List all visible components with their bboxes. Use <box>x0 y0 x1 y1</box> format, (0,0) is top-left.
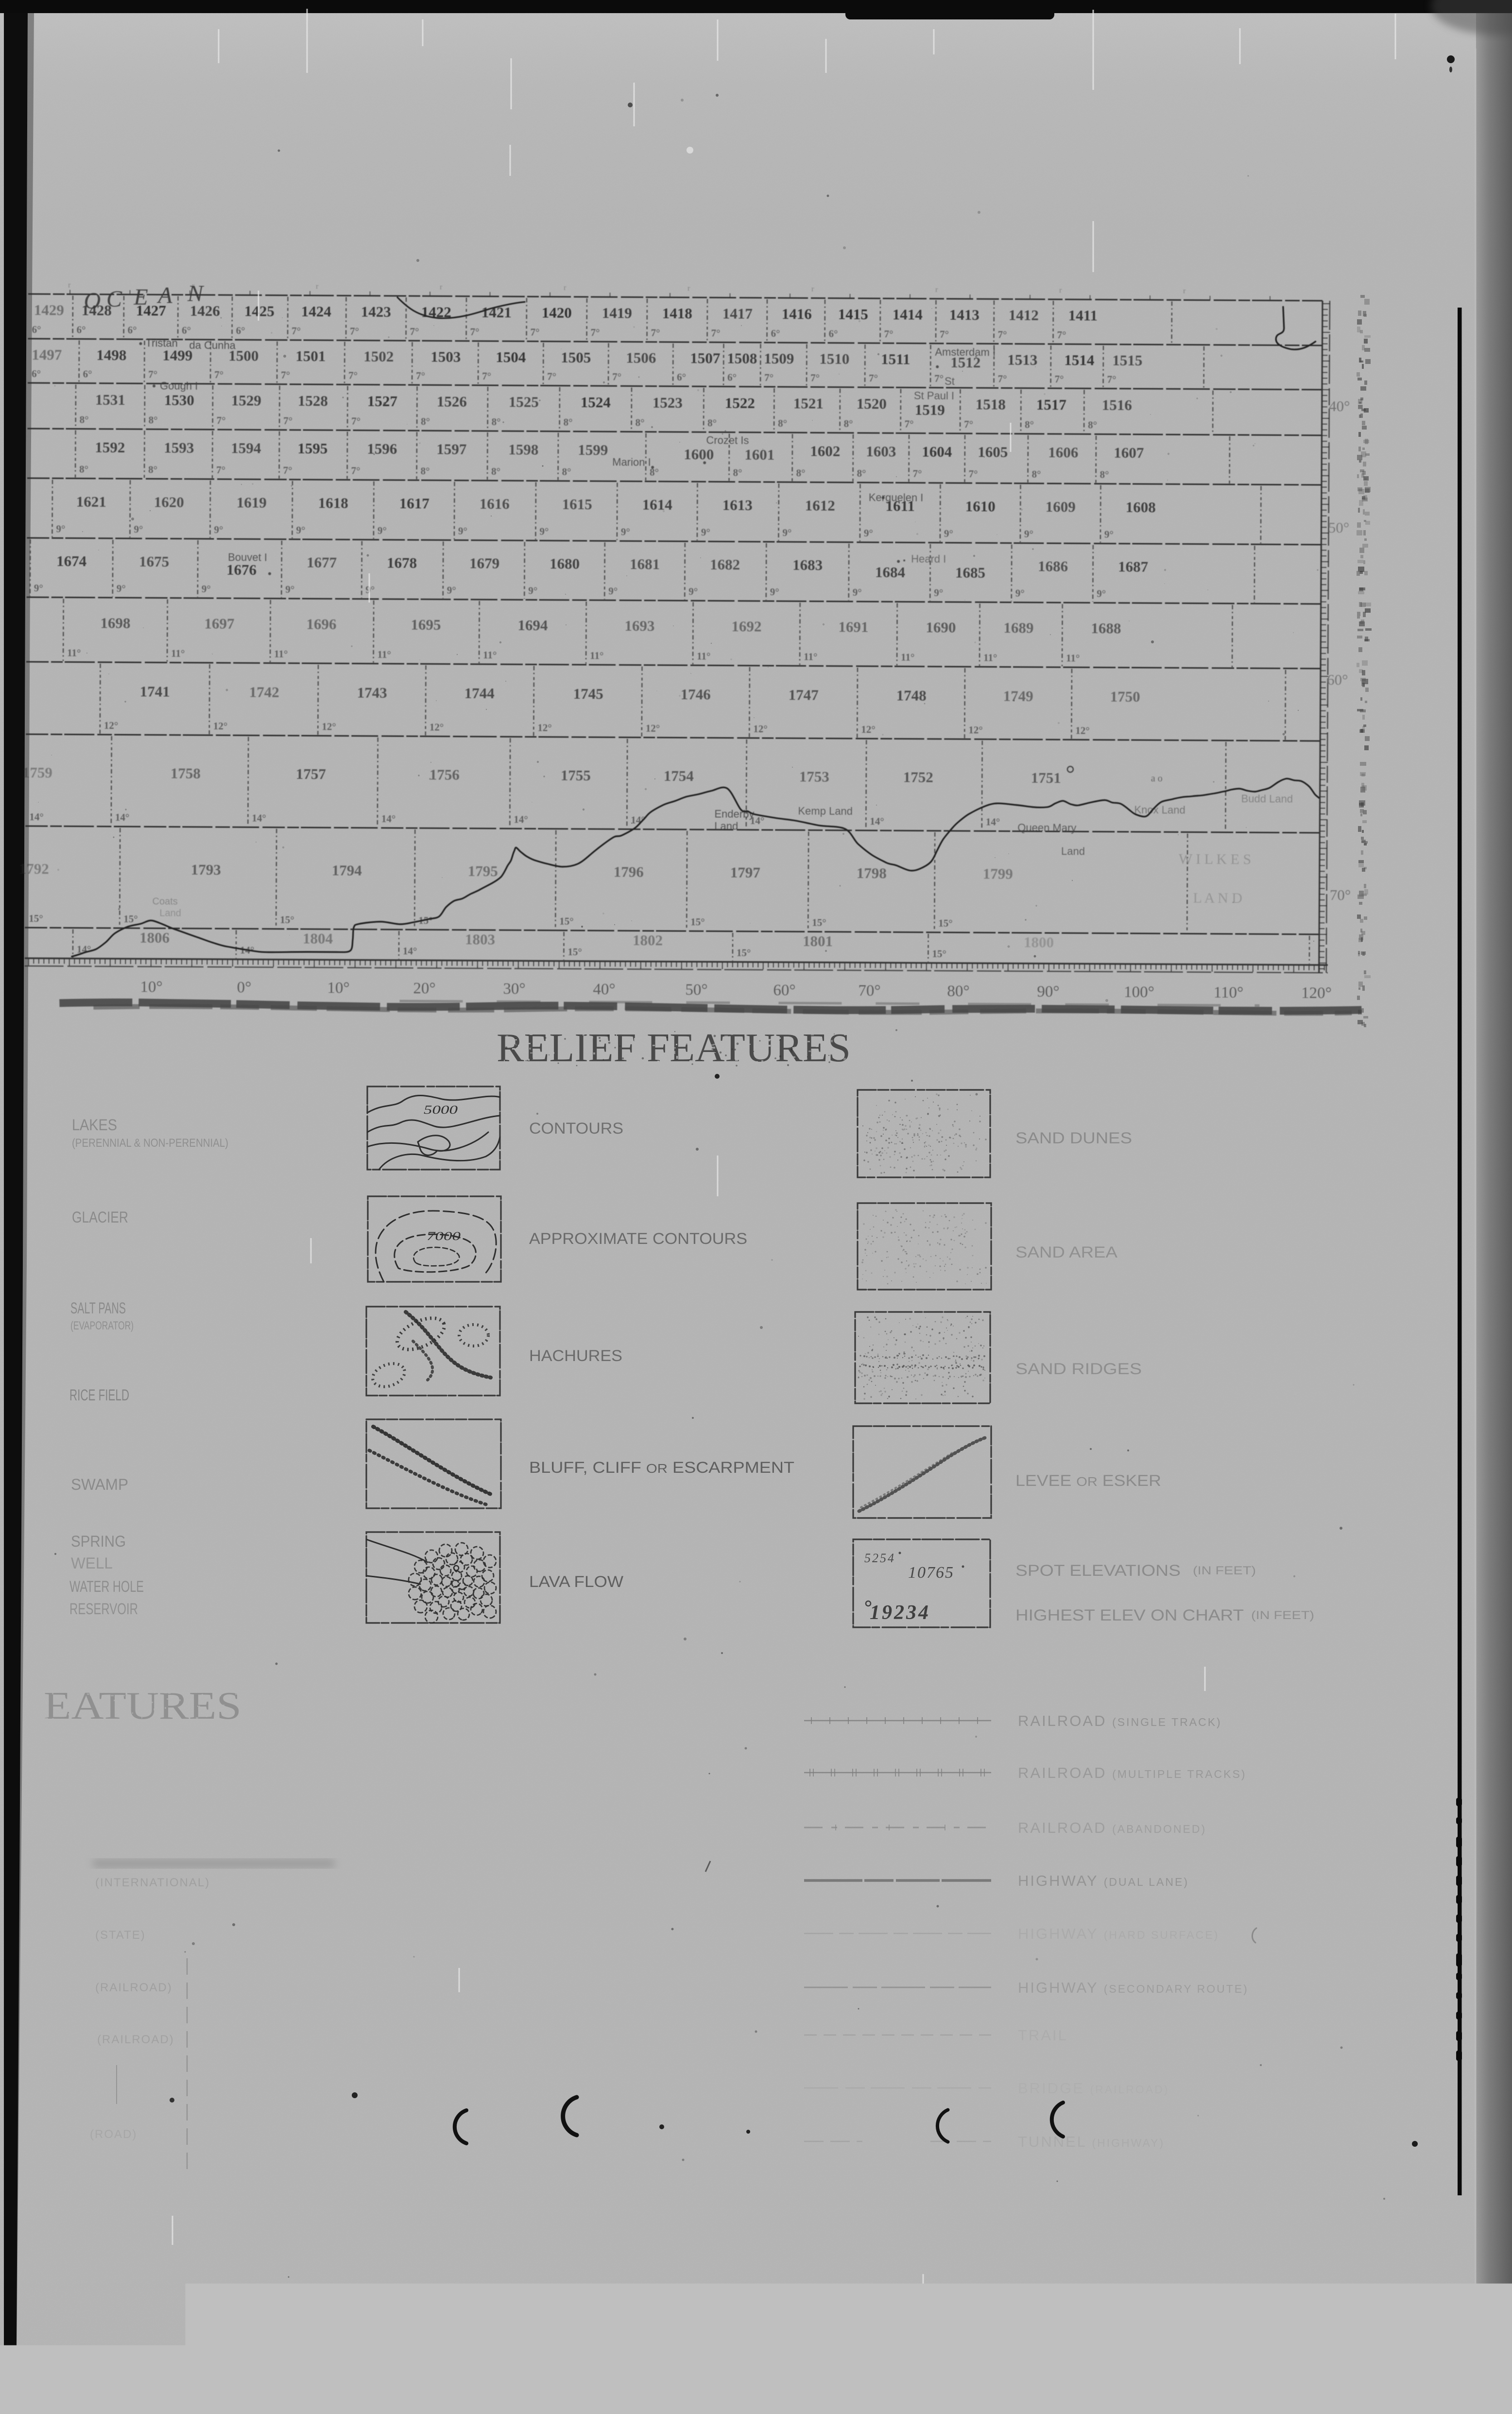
svg-text:7°: 7° <box>547 371 556 382</box>
svg-text:1757: 1757 <box>296 765 326 782</box>
svg-text:LAKES: LAKES <box>72 1116 117 1134</box>
svg-text:50°: 50° <box>1328 519 1350 536</box>
svg-text:(STATE): (STATE) <box>95 1929 146 1942</box>
svg-text:1509: 1509 <box>764 350 794 367</box>
svg-text:11°: 11° <box>590 650 603 661</box>
svg-text:1525: 1525 <box>509 393 539 410</box>
svg-text:1747: 1747 <box>789 686 819 703</box>
svg-text:1679: 1679 <box>469 554 499 571</box>
svg-text:14°: 14° <box>381 813 396 825</box>
svg-text:9°: 9° <box>1097 588 1106 600</box>
svg-text:12°: 12° <box>968 724 983 736</box>
svg-text:1796: 1796 <box>614 863 644 880</box>
svg-text:1753: 1753 <box>799 768 829 785</box>
svg-text:5000: 5000 <box>424 1104 458 1117</box>
svg-text:TRAIL: TRAIL <box>1018 2027 1068 2044</box>
svg-text:6°: 6° <box>677 371 686 383</box>
svg-text:15°: 15° <box>737 947 751 959</box>
svg-text:11°: 11° <box>67 647 81 658</box>
svg-text:7°: 7° <box>711 327 721 339</box>
svg-text:1497: 1497 <box>32 346 62 363</box>
svg-text:Coats: Coats <box>152 896 177 907</box>
svg-text:1607: 1607 <box>1114 444 1144 461</box>
svg-text:1608: 1608 <box>1126 499 1156 516</box>
svg-text:Land: Land <box>159 908 181 918</box>
svg-text:1519: 1519 <box>915 401 945 418</box>
svg-text:12°: 12° <box>1075 724 1090 736</box>
svg-text:11°: 11° <box>697 650 710 662</box>
svg-text:1601: 1601 <box>744 446 774 463</box>
svg-text:1693: 1693 <box>624 617 654 634</box>
svg-text:1531: 1531 <box>95 391 125 408</box>
svg-text:15°: 15° <box>559 915 574 927</box>
svg-text:9°: 9° <box>447 585 456 596</box>
svg-text:1806: 1806 <box>139 929 170 946</box>
svg-text:1417: 1417 <box>722 305 753 322</box>
svg-text:7°: 7° <box>940 328 949 340</box>
svg-text:15°: 15° <box>690 916 705 928</box>
svg-text:r: r <box>1059 286 1062 294</box>
svg-text:1621: 1621 <box>76 493 106 510</box>
svg-text:8°: 8° <box>707 417 717 429</box>
svg-text:1680: 1680 <box>550 555 580 572</box>
svg-text:LAVA FLOW: LAVA FLOW <box>529 1573 624 1590</box>
svg-text:11°: 11° <box>804 651 817 662</box>
svg-text:1695: 1695 <box>411 616 441 633</box>
svg-text:SAND AREA: SAND AREA <box>1015 1243 1118 1261</box>
svg-text:10765: 10765 <box>908 1564 954 1582</box>
svg-text:1529: 1529 <box>231 392 261 409</box>
svg-text:1612: 1612 <box>805 497 835 514</box>
svg-text:r: r <box>440 283 443 291</box>
svg-text:60°: 60° <box>773 982 795 999</box>
svg-text:SAND RIDGES: SAND RIDGES <box>1015 1360 1142 1378</box>
svg-text:12°: 12° <box>646 723 660 734</box>
svg-text:1593: 1593 <box>164 439 194 456</box>
svg-text:7°: 7° <box>348 369 358 381</box>
svg-text:8°: 8° <box>1032 468 1041 480</box>
svg-text:1418: 1418 <box>662 305 692 322</box>
svg-text:Queen Mary: Queen Mary <box>1017 822 1076 834</box>
svg-text:1592: 1592 <box>95 439 125 456</box>
svg-text:1416: 1416 <box>782 305 812 322</box>
svg-text:1595: 1595 <box>297 440 327 457</box>
svg-text:12°: 12° <box>430 721 444 733</box>
svg-text:7°: 7° <box>292 325 301 337</box>
svg-text:A: A <box>156 282 172 308</box>
svg-text:6°: 6° <box>77 324 86 336</box>
svg-text:7°: 7° <box>964 418 973 430</box>
svg-text:1520: 1520 <box>857 395 887 412</box>
svg-text:Knox Land: Knox Land <box>1134 804 1185 816</box>
svg-text:9°: 9° <box>34 582 43 594</box>
svg-text:15°: 15° <box>280 914 294 926</box>
svg-text:1504: 1504 <box>496 348 526 365</box>
svg-text:6°: 6° <box>236 325 245 336</box>
svg-text:8°: 8° <box>149 414 158 426</box>
svg-text:LEVEE OR ESKER: LEVEE OR ESKER <box>1015 1472 1161 1489</box>
svg-text:7°: 7° <box>148 368 157 380</box>
svg-text:E: E <box>133 284 148 310</box>
svg-text:SWAMP: SWAMP <box>71 1476 128 1493</box>
svg-text:Bouvet I: Bouvet I <box>228 551 267 563</box>
svg-text:9°: 9° <box>782 527 791 538</box>
svg-text:15°: 15° <box>812 916 826 928</box>
svg-text:7°: 7° <box>283 415 292 427</box>
svg-text:15°: 15° <box>932 948 946 960</box>
svg-text:60°: 60° <box>1327 671 1348 688</box>
svg-text:20°: 20° <box>413 980 435 997</box>
svg-text:8°: 8° <box>733 467 742 479</box>
svg-text:1508: 1508 <box>727 349 757 366</box>
svg-text:SAND DUNES: SAND DUNES <box>1015 1129 1132 1147</box>
svg-text:1511: 1511 <box>881 350 910 367</box>
svg-text:1681: 1681 <box>630 555 660 572</box>
svg-text:r: r <box>68 281 71 289</box>
svg-text:1609: 1609 <box>1046 498 1076 515</box>
svg-text:1800: 1800 <box>1024 933 1054 950</box>
svg-text:8°: 8° <box>778 417 787 429</box>
svg-text:1605: 1605 <box>978 443 1008 460</box>
svg-text:1424: 1424 <box>301 303 331 320</box>
svg-text:7°: 7° <box>651 327 660 339</box>
svg-text:1615: 1615 <box>562 496 592 513</box>
svg-text:1752: 1752 <box>903 768 933 785</box>
svg-text:14°: 14° <box>252 812 266 824</box>
svg-text:8°: 8° <box>1025 419 1034 431</box>
svg-text:1746: 1746 <box>681 686 711 703</box>
svg-text:RESERVOIR: RESERVOIR <box>69 1600 138 1618</box>
svg-text:1518: 1518 <box>976 396 1006 413</box>
svg-text:1502: 1502 <box>363 347 394 364</box>
svg-text:9°: 9° <box>365 584 375 596</box>
svg-text:r: r <box>316 282 319 291</box>
svg-text:da Cunha: da Cunha <box>189 339 236 352</box>
svg-text:7°: 7° <box>810 372 820 383</box>
svg-text:8°: 8° <box>492 416 501 428</box>
svg-text:90°: 90° <box>1037 983 1059 1000</box>
svg-text:0°: 0° <box>237 979 252 996</box>
svg-text:WELL: WELL <box>71 1554 113 1572</box>
svg-text:11°: 11° <box>983 652 997 663</box>
svg-text:6°: 6° <box>83 368 92 380</box>
svg-text:100°: 100° <box>1124 983 1154 1001</box>
svg-text:9°: 9° <box>770 586 779 598</box>
svg-text:12°: 12° <box>213 720 228 732</box>
svg-text:1599: 1599 <box>578 441 608 458</box>
svg-text:9°: 9° <box>621 526 630 537</box>
svg-text:8°: 8° <box>844 418 853 430</box>
svg-text:7°: 7° <box>998 373 1007 384</box>
svg-text:Gough I: Gough I <box>160 379 198 392</box>
svg-text:(RAILROAD): (RAILROAD) <box>97 2033 174 2046</box>
svg-text:1694: 1694 <box>517 617 548 634</box>
svg-text:1516: 1516 <box>1102 397 1132 414</box>
svg-text:7°: 7° <box>612 371 621 382</box>
svg-text:1501: 1501 <box>295 347 326 364</box>
svg-text:8°: 8° <box>148 464 157 475</box>
svg-text:1742: 1742 <box>249 683 279 700</box>
svg-text:1691: 1691 <box>838 618 868 635</box>
svg-text:1798: 1798 <box>857 864 887 881</box>
svg-text:1411: 1411 <box>1068 307 1098 324</box>
svg-text:1522: 1522 <box>725 395 755 412</box>
svg-text:11°: 11° <box>1066 652 1080 664</box>
svg-text:9°: 9° <box>934 587 943 599</box>
svg-text:O: O <box>84 288 101 314</box>
svg-text:APPROXIMATE CONTOURS: APPROXIMATE CONTOURS <box>529 1230 747 1247</box>
svg-text:1750: 1750 <box>1110 688 1140 705</box>
svg-text:70°: 70° <box>1330 886 1351 903</box>
svg-text:9°: 9° <box>285 584 294 595</box>
svg-text:7°: 7° <box>281 369 290 381</box>
svg-text:1741: 1741 <box>140 683 170 700</box>
svg-text:11°: 11° <box>274 648 288 660</box>
svg-text:7°: 7° <box>869 372 878 384</box>
svg-text:50°: 50° <box>685 981 707 999</box>
svg-text:1799: 1799 <box>983 865 1013 882</box>
svg-text:6°: 6° <box>128 324 137 336</box>
svg-text:40°: 40° <box>593 981 615 998</box>
svg-text:1412: 1412 <box>1009 307 1039 324</box>
svg-text:Marion I: Marion I <box>612 456 651 468</box>
svg-text:Land: Land <box>1061 845 1085 857</box>
svg-text:7°: 7° <box>410 326 419 337</box>
svg-text:Kerguelen I: Kerguelen I <box>869 491 924 504</box>
svg-text:8°: 8° <box>421 415 430 427</box>
svg-text:11°: 11° <box>378 649 391 660</box>
svg-text:SPRING: SPRING <box>71 1533 126 1550</box>
svg-text:7°: 7° <box>591 327 600 338</box>
svg-text:1755: 1755 <box>561 767 591 784</box>
svg-text:7°: 7° <box>934 373 944 384</box>
svg-text:1743: 1743 <box>357 684 387 701</box>
svg-text:N: N <box>187 281 205 307</box>
svg-text:1614: 1614 <box>642 496 672 513</box>
svg-text:1794: 1794 <box>332 862 362 879</box>
svg-text:1414: 1414 <box>893 306 923 323</box>
svg-text:12°: 12° <box>753 723 768 735</box>
svg-text:1745: 1745 <box>573 685 603 702</box>
svg-text:EATURES: EATURES <box>44 1685 241 1727</box>
svg-text:8°: 8° <box>564 416 573 428</box>
svg-text:CONTOURS: CONTOURS <box>529 1120 623 1137</box>
svg-text:1514: 1514 <box>1064 351 1094 368</box>
svg-text:14°: 14° <box>403 945 417 957</box>
svg-text:1413: 1413 <box>949 306 979 323</box>
svg-text:1616: 1616 <box>480 495 510 512</box>
svg-text:HACHURES: HACHURES <box>529 1347 622 1364</box>
svg-text:C: C <box>106 286 122 312</box>
svg-text:1619: 1619 <box>237 494 267 511</box>
svg-text:1792: 1792 <box>19 860 49 877</box>
svg-text:1598: 1598 <box>508 441 538 458</box>
svg-text:1758: 1758 <box>171 764 201 781</box>
svg-text:Land: Land <box>714 820 738 832</box>
svg-text:1748: 1748 <box>896 687 927 704</box>
svg-text:r: r <box>935 286 938 294</box>
svg-text:1602: 1602 <box>810 442 840 459</box>
svg-text:1698: 1698 <box>100 614 130 631</box>
svg-text:1759: 1759 <box>22 764 52 781</box>
svg-text:1526: 1526 <box>437 393 467 410</box>
svg-text:Heard I: Heard I <box>911 553 946 565</box>
svg-text:40°: 40° <box>1329 397 1350 414</box>
svg-text:8°: 8° <box>636 417 645 429</box>
svg-text:1506: 1506 <box>626 349 656 366</box>
svg-text:7°: 7° <box>884 328 893 340</box>
svg-text:8°: 8° <box>650 466 659 478</box>
svg-text:GLACIER: GLACIER <box>72 1208 128 1226</box>
svg-text:9°: 9° <box>688 586 698 597</box>
svg-text:11°: 11° <box>483 649 497 661</box>
svg-text:9°: 9° <box>864 527 873 539</box>
svg-text:RICE FIELD: RICE FIELD <box>69 1386 129 1404</box>
svg-text:7°: 7° <box>214 369 223 380</box>
svg-text:9°: 9° <box>202 583 211 595</box>
svg-text:7°: 7° <box>217 414 226 426</box>
svg-text:L A N D: L A N D <box>1193 890 1242 907</box>
svg-text:1603: 1603 <box>866 443 896 460</box>
svg-text:15°: 15° <box>567 946 582 958</box>
svg-text:1594: 1594 <box>231 439 261 456</box>
svg-text:1530: 1530 <box>164 392 194 409</box>
svg-text:11°: 11° <box>901 651 914 663</box>
svg-text:1685: 1685 <box>955 564 985 581</box>
svg-text:Budd Land: Budd Land <box>1241 793 1293 805</box>
svg-text:7°: 7° <box>764 372 773 383</box>
svg-text:1613: 1613 <box>722 496 753 513</box>
svg-text:12°: 12° <box>537 722 552 733</box>
svg-text:RELIEF FEATURES: RELIEF FEATURES <box>497 1025 851 1070</box>
svg-text:(PERENNIAL & NON-PERENNIAL): (PERENNIAL & NON-PERENNIAL) <box>72 1137 228 1150</box>
svg-text:1803: 1803 <box>465 931 495 948</box>
svg-text:1684: 1684 <box>875 563 905 580</box>
svg-text:1696: 1696 <box>306 616 336 633</box>
svg-text:r: r <box>1183 287 1186 295</box>
svg-text:1688: 1688 <box>1091 620 1121 637</box>
svg-text:12°: 12° <box>104 720 119 731</box>
svg-text:9°: 9° <box>458 525 467 537</box>
svg-text:a o: a o <box>1151 773 1163 784</box>
svg-text:9°: 9° <box>1024 528 1033 540</box>
svg-text:1617: 1617 <box>399 495 430 512</box>
svg-text:9°: 9° <box>134 523 143 535</box>
svg-text:7°: 7° <box>1107 374 1117 385</box>
svg-text:6°: 6° <box>727 372 737 383</box>
svg-text:1420: 1420 <box>542 304 572 321</box>
svg-text:9°: 9° <box>853 586 862 598</box>
svg-text:(INTERNATIONAL): (INTERNATIONAL) <box>95 1876 210 1889</box>
svg-text:1423: 1423 <box>361 303 391 320</box>
svg-text:12°: 12° <box>322 721 336 732</box>
svg-text:1507: 1507 <box>690 349 720 366</box>
svg-text:7°: 7° <box>482 370 491 382</box>
svg-text:1513: 1513 <box>1007 351 1037 368</box>
svg-text:15°: 15° <box>123 913 138 925</box>
svg-text:1618: 1618 <box>318 494 348 511</box>
svg-text:5254: 5254 <box>864 1551 895 1565</box>
svg-text:1676: 1676 <box>226 561 257 578</box>
svg-text:1751: 1751 <box>1031 769 1061 786</box>
svg-text:1690: 1690 <box>926 619 956 636</box>
svg-text:9°: 9° <box>117 583 126 594</box>
svg-text:1797: 1797 <box>730 864 760 881</box>
svg-text:7°: 7° <box>1057 329 1066 341</box>
svg-text:1597: 1597 <box>436 440 466 457</box>
svg-text:7°: 7° <box>1055 373 1064 385</box>
svg-text:6°: 6° <box>829 328 838 340</box>
svg-text:9°: 9° <box>1015 587 1025 599</box>
svg-text:1678: 1678 <box>387 554 417 571</box>
svg-text:8°: 8° <box>562 466 571 478</box>
svg-text:15°: 15° <box>938 917 953 929</box>
svg-text:7°: 7° <box>905 418 914 430</box>
svg-text:SALT PANS: SALT PANS <box>70 1299 126 1317</box>
svg-text:10°: 10° <box>140 978 162 996</box>
svg-text:14°: 14° <box>115 811 130 823</box>
svg-text:1620: 1620 <box>154 493 184 510</box>
svg-text:8°: 8° <box>421 465 430 477</box>
svg-text:1687: 1687 <box>1118 558 1148 575</box>
svg-text:r: r <box>564 284 567 292</box>
svg-text:1503: 1503 <box>430 348 461 365</box>
svg-text:1675: 1675 <box>139 553 169 570</box>
svg-text:9°: 9° <box>1104 529 1114 540</box>
svg-text:1754: 1754 <box>664 767 694 784</box>
svg-text:7°: 7° <box>470 326 480 338</box>
svg-text:7°: 7° <box>350 325 359 337</box>
svg-text:1674: 1674 <box>56 552 86 569</box>
svg-text:7°: 7° <box>531 326 540 338</box>
svg-text:1692: 1692 <box>731 618 761 635</box>
svg-text:7°: 7° <box>998 328 1007 340</box>
svg-text:1744: 1744 <box>464 685 495 702</box>
svg-text:7°: 7° <box>913 468 922 480</box>
svg-text:8°: 8° <box>1100 469 1109 481</box>
svg-text:BLUFF, CLIFF OR ESCARPMENT: BLUFF, CLIFF OR ESCARPMENT <box>529 1459 794 1476</box>
svg-text:HIGHEST ELEV ON CHART: HIGHEST ELEV ON CHART <box>1015 1606 1244 1624</box>
svg-text:8°: 8° <box>79 464 88 475</box>
svg-text:1419: 1419 <box>602 304 632 321</box>
svg-text:12°: 12° <box>861 724 876 735</box>
svg-text:1527: 1527 <box>367 393 397 410</box>
svg-text:r: r <box>687 284 690 293</box>
svg-text:1802: 1802 <box>633 931 663 948</box>
svg-text:r: r <box>811 285 814 293</box>
svg-text:19234: 19234 <box>870 1602 930 1624</box>
svg-text:14°: 14° <box>514 813 528 825</box>
svg-text:1600: 1600 <box>684 446 714 463</box>
svg-text:Enderby: Enderby <box>714 808 754 820</box>
svg-text:7°: 7° <box>216 464 225 476</box>
svg-text:9°: 9° <box>528 585 537 596</box>
svg-text:30°: 30° <box>503 980 525 998</box>
svg-text:8°: 8° <box>1088 419 1097 431</box>
svg-text:7°: 7° <box>416 370 425 381</box>
svg-text:70°: 70° <box>858 982 880 1000</box>
svg-text:SPOT ELEVATIONS: SPOT ELEVATIONS <box>1015 1562 1181 1579</box>
svg-text:W I L K E S: W I L K E S <box>1179 851 1251 867</box>
svg-text:9°: 9° <box>701 526 710 538</box>
svg-text:1697: 1697 <box>204 615 234 632</box>
svg-text:Tristan: Tristan <box>145 337 178 349</box>
svg-text:9°: 9° <box>296 524 305 536</box>
svg-text:1429: 1429 <box>34 301 64 318</box>
svg-text:6°: 6° <box>182 325 191 336</box>
svg-text:1528: 1528 <box>298 392 328 409</box>
svg-text:1523: 1523 <box>653 394 683 411</box>
